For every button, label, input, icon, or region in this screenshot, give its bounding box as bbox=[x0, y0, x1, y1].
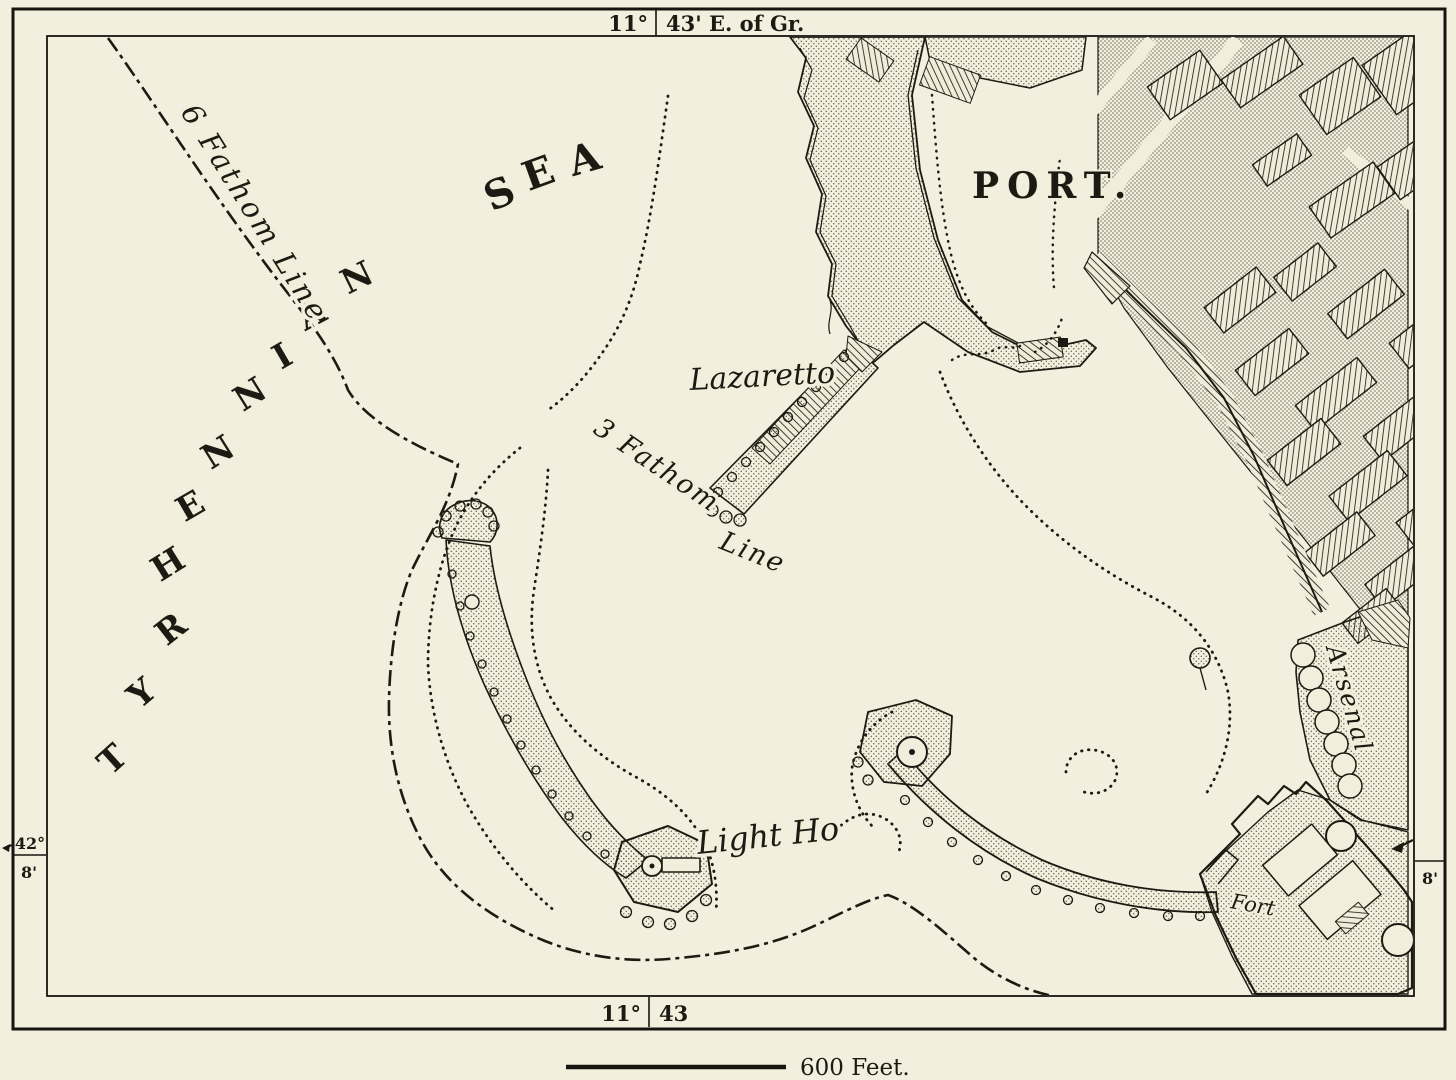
bottom-longitude-degrees: 11° bbox=[601, 1001, 641, 1026]
sea-word-letter: S bbox=[477, 166, 523, 221]
lighthouse-lamp-dot bbox=[650, 864, 655, 869]
west-breakwater-basin bbox=[465, 595, 479, 609]
scale-bar: 600 Feet. bbox=[566, 1055, 910, 1080]
town-district bbox=[1006, 25, 1456, 643]
sea-word-letter: E bbox=[516, 146, 561, 201]
sea-letter: E bbox=[169, 483, 211, 531]
lighthouse-building bbox=[662, 858, 700, 872]
sea-word-letter: A bbox=[562, 132, 607, 186]
harbour-beacon-stem bbox=[1200, 668, 1206, 690]
map-content: T Y R H E N N I A N S E A PORT. Lazarett… bbox=[90, 25, 1456, 997]
sea-letter: R bbox=[148, 604, 195, 653]
engraved-port-map-page: T Y R H E N N I A N S E A PORT. Lazarett… bbox=[0, 0, 1456, 1080]
sea-letter: N bbox=[226, 369, 274, 419]
head-fort-tower-dot bbox=[909, 749, 915, 755]
sea-letter: I bbox=[266, 335, 300, 378]
fort-round-tower bbox=[1382, 924, 1414, 956]
label-three-fathom: 3 Fathom bbox=[588, 412, 725, 519]
label-three-fathom-line-word: Line bbox=[714, 525, 790, 580]
left-latitude-degrees: 42° bbox=[15, 834, 45, 853]
top-longitude-minutes: 43' E. of Gr. bbox=[666, 11, 804, 36]
sea-letter: T bbox=[90, 736, 136, 783]
sea-letter: Y bbox=[119, 670, 165, 717]
map-svg: T Y R H E N N I A N S E A PORT. Lazarett… bbox=[0, 0, 1456, 1080]
harbour-beacon bbox=[1190, 648, 1210, 668]
scale-bar-label: 600 Feet. bbox=[800, 1055, 910, 1080]
head-fort-rock bbox=[853, 757, 863, 767]
west-breakwater bbox=[433, 499, 712, 930]
east-breakwater bbox=[853, 700, 1218, 921]
head-fort-rock bbox=[863, 775, 873, 785]
sea-letter: H bbox=[144, 539, 192, 590]
label-six-fathom-line: 6 Fathom Line bbox=[174, 98, 336, 329]
label-port: PORT. bbox=[972, 165, 1134, 207]
stream-line bbox=[829, 300, 831, 334]
label-lighthouse: Light Ho bbox=[694, 809, 841, 862]
south-pier-block bbox=[1058, 338, 1068, 347]
bottom-longitude-minutes: 43 bbox=[659, 1001, 688, 1026]
latitude-arrow-left bbox=[2, 844, 12, 852]
west-breakwater-band bbox=[446, 540, 648, 878]
sea-letter: N bbox=[194, 427, 242, 477]
east-breakwater-band bbox=[888, 750, 1218, 912]
left-latitude-minutes: 8' bbox=[21, 863, 37, 882]
right-latitude-minutes: 8' bbox=[1422, 869, 1438, 888]
sea-letter: N bbox=[334, 253, 379, 303]
top-longitude-degrees: 11° bbox=[608, 11, 648, 36]
